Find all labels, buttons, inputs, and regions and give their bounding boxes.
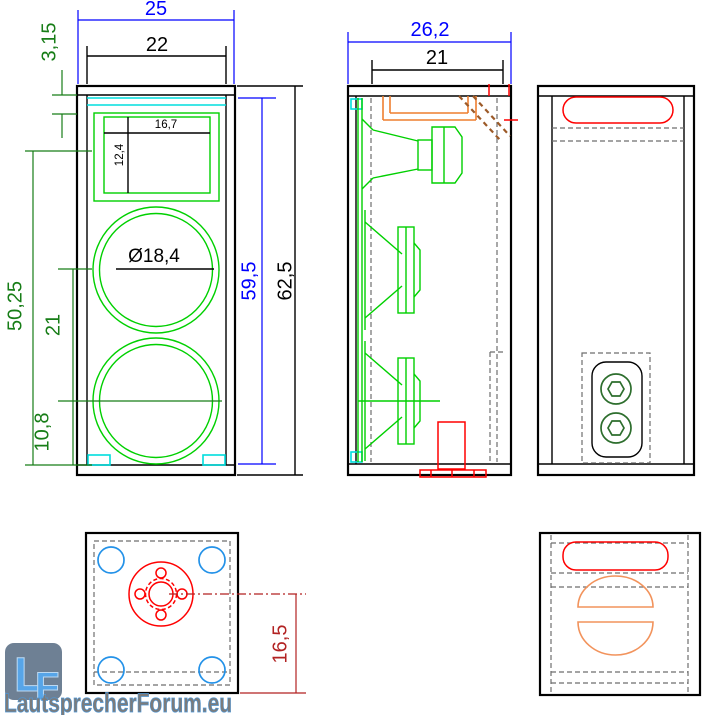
woofer-cutout-top-outer — [93, 207, 219, 333]
dim-woofer-to-bottom: 10,8 — [31, 413, 53, 452]
woofer-side-bottom — [358, 341, 440, 461]
dim-outer-width: 25 — [145, 0, 167, 20]
terminal-cup — [582, 353, 650, 463]
port-tube-front-half — [578, 576, 653, 607]
woofer-cutout-top-inner — [100, 214, 213, 327]
foot-front-right — [199, 547, 225, 573]
front-foot-left — [88, 455, 110, 465]
site-name: LautsprecherForum.eu — [4, 688, 232, 715]
front-foot-right — [203, 455, 225, 465]
top-outline — [540, 533, 700, 695]
dim-outer-depth: 26,2 — [411, 19, 450, 41]
woofer-side-top — [365, 210, 420, 330]
foot-back-left — [98, 657, 124, 683]
back-view — [538, 86, 694, 475]
front-view: 25 22 3,15 16,7 12,4 Ø18,4 50,25 21 10,8 — [4, 0, 303, 475]
dim-tweeter-height: 12,4 — [114, 143, 126, 166]
dim-woofer-diameter: Ø18,4 — [128, 246, 180, 267]
side-view: 26,2 21 — [348, 19, 518, 477]
binding-post-bottom — [601, 413, 631, 443]
foot-back-right — [199, 657, 225, 683]
dim-inner-width: 22 — [146, 34, 168, 56]
side-cabinet-outline — [348, 86, 511, 475]
dim-top-offset: 3,15 — [38, 23, 60, 62]
stand-side — [420, 422, 486, 477]
dim-inner-height: 59,5 — [238, 262, 260, 301]
cad-drawing: 25 22 3,15 16,7 12,4 Ø18,4 50,25 21 10,8 — [0, 0, 707, 715]
port-tube-back-half — [578, 622, 653, 655]
top-view — [540, 533, 700, 695]
stand-flange — [129, 562, 193, 626]
tweeter-side — [362, 119, 462, 189]
foot-front-left — [98, 547, 124, 573]
speaker-construction-plan: 25 22 3,15 16,7 12,4 Ø18,4 50,25 21 10,8 — [0, 0, 707, 715]
dim-tweeter-width: 16,7 — [155, 119, 177, 131]
binding-post-top — [601, 374, 631, 404]
bottom-outline — [86, 533, 238, 693]
watermark: L F LautsprecherForum.eu — [4, 643, 232, 715]
port-slot-back — [563, 97, 673, 123]
dim-flange-offset: 16,5 — [269, 625, 291, 664]
dim-outer-height: 62,5 — [274, 262, 296, 301]
flange-screw — [156, 610, 166, 620]
dim-woofer-spacing: 21 — [42, 314, 64, 336]
flange-screw — [135, 589, 145, 599]
flange-screw — [156, 568, 166, 578]
bottom-view: 16,5 — [86, 533, 306, 693]
dim-tweeter-to-bottom: 50,25 — [4, 281, 26, 331]
back-cabinet-outline — [538, 86, 694, 475]
port-slot-top — [563, 542, 668, 570]
dim-inner-depth: 21 — [426, 47, 448, 69]
